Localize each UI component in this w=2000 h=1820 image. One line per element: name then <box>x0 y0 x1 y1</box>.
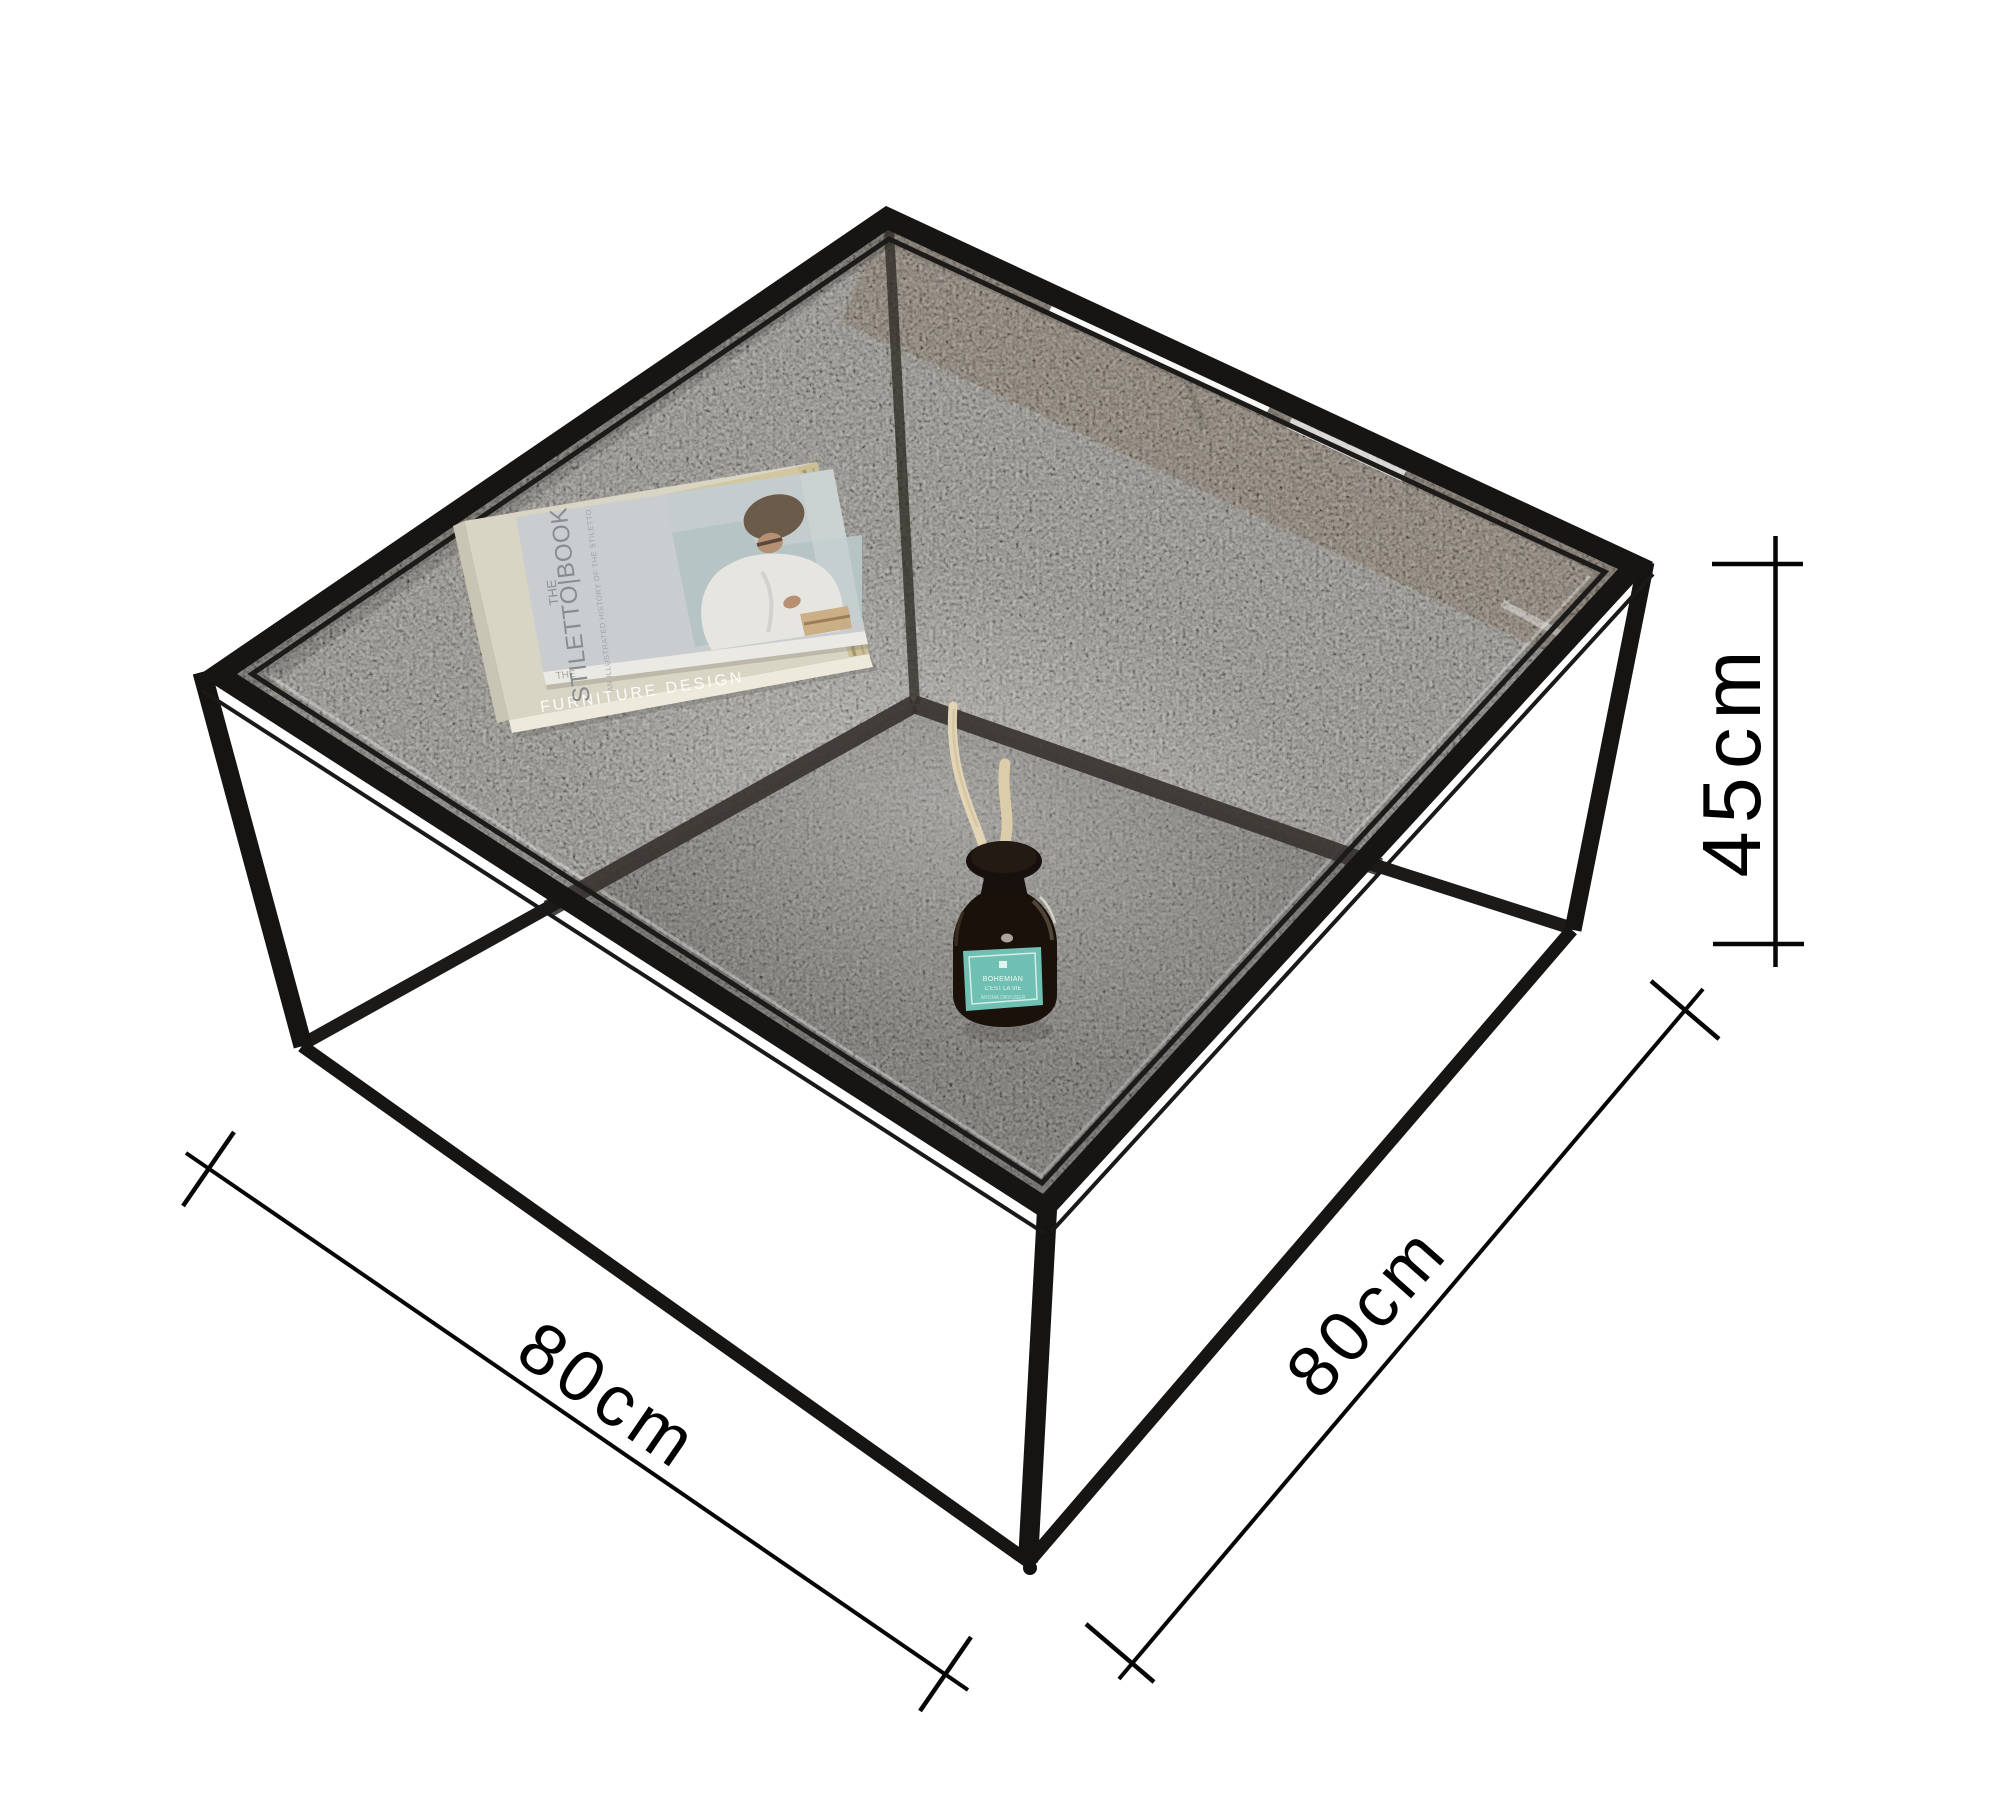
svg-text:BOHEMIAN: BOHEMIAN <box>983 976 1024 983</box>
svg-text:THE: THE <box>543 578 561 606</box>
svg-text:45cm: 45cm <box>1685 643 1778 878</box>
svg-text:C'EST LA VIE: C'EST LA VIE <box>984 986 1021 992</box>
svg-text:AROMA DIFFUSER: AROMA DIFFUSER <box>981 995 1026 1001</box>
